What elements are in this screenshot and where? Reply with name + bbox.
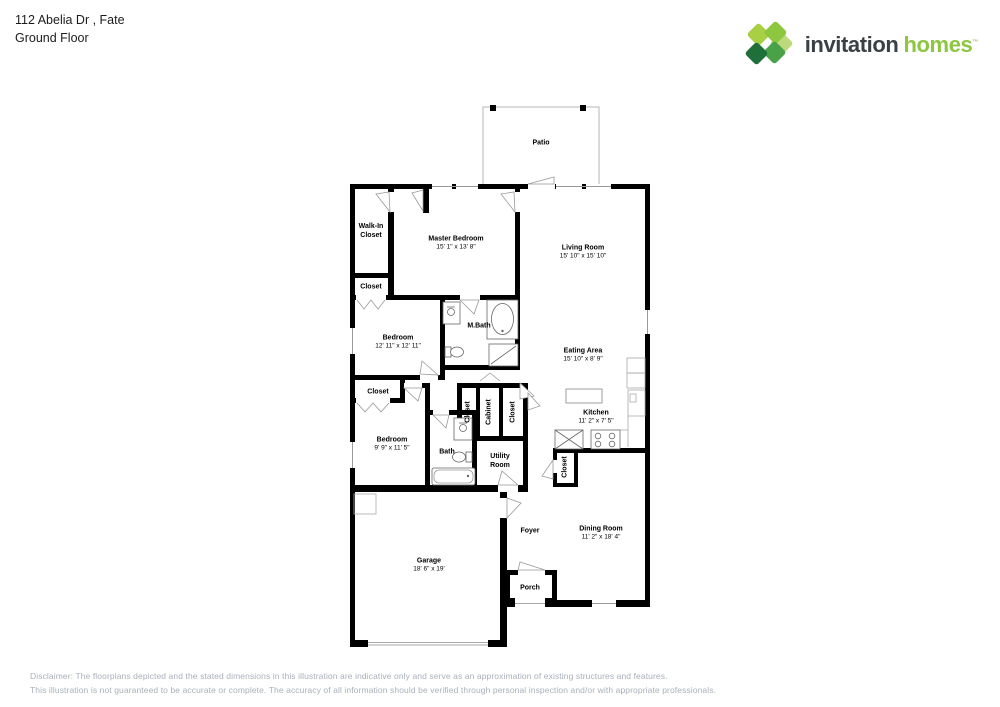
room-label-bath: Bath xyxy=(439,447,455,456)
room-label-utility-room: Utility Room xyxy=(484,452,516,470)
floorplan: Patio Walk-In Closet Master Bedroom15' 1… xyxy=(340,100,660,650)
floorplan-page: { "header": { "address": "112 Abelia Dr … xyxy=(0,0,1000,707)
room-label-dining-room: Dining Room11' 2" x 18' 4" xyxy=(579,524,623,541)
disclaimer-line-2: This illustration is not guaranteed to b… xyxy=(30,685,716,695)
invitation-homes-logo: invitationhomes™ xyxy=(745,20,978,70)
stove-icon xyxy=(591,430,620,449)
mbath-bathtub-icon xyxy=(487,300,518,339)
room-label-bedroom-1: Bedroom12' 11" x 12' 11" xyxy=(375,333,421,350)
floor-label: Ground Floor xyxy=(15,31,89,45)
room-label-patio: Patio xyxy=(532,138,549,147)
bath-bathtub-icon xyxy=(432,468,475,485)
kitchen-sink-icon xyxy=(555,430,583,449)
room-label-closet-c: Closet xyxy=(463,401,472,422)
room-label-closet-e: Closet xyxy=(560,456,569,477)
room-label-closet-d: Closet xyxy=(508,401,517,422)
address-line: 112 Abelia Dr , Fate xyxy=(15,13,125,27)
logo-diamonds-icon xyxy=(745,20,793,70)
floorplan-drawing xyxy=(340,100,660,650)
room-label-closet-a: Closet xyxy=(360,282,381,291)
room-label-master-bedroom: Master Bedroom15' 1" x 13' 8" xyxy=(428,234,483,251)
garage-water-heater-icon xyxy=(354,494,376,514)
mbath-shower-icon xyxy=(489,344,518,366)
room-label-foyer: Foyer xyxy=(520,526,539,535)
logo-wordmark: invitationhomes™ xyxy=(805,32,978,58)
mbath-vanity-sink-icon xyxy=(443,302,460,324)
room-label-porch: Porch xyxy=(520,583,540,592)
room-label-cabinet: Cabinet xyxy=(484,399,493,425)
room-label-closet-b: Closet xyxy=(367,387,388,396)
kitchen-counter-fridge-icon xyxy=(620,358,645,447)
room-label-walk-in-closet: Walk-In Closet xyxy=(352,222,390,240)
mbath-toilet-icon xyxy=(445,347,464,357)
room-label-m-bath: M.Bath xyxy=(467,321,490,330)
kitchen-island-icon xyxy=(566,389,602,403)
room-label-garage: Garage18' 6" x 19' xyxy=(413,556,445,573)
room-label-bedroom-2: Bedroom9' 9" x 11' 5" xyxy=(374,435,409,452)
room-label-kitchen: Kitchen11' 2" x 7' 5" xyxy=(578,408,613,425)
room-label-living-room: Living Room15' 10" x 15' 10" xyxy=(560,243,607,260)
disclaimer-line-1: Disclaimer: The floorplans depicted and … xyxy=(30,671,668,681)
room-label-eating-area: Eating Area15' 10" x 8' 9" xyxy=(563,346,602,363)
bath-toilet-icon xyxy=(453,452,473,462)
